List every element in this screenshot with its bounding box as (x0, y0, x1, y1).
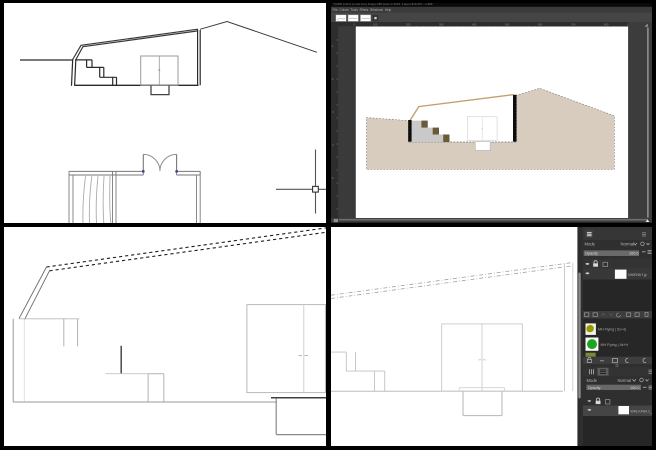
svg-text:*(GIMP xcfw-5 on test Grey Ima: *(GIMP xcfw-5 on test Grey Image) 288 (t… (333, 3, 433, 6)
svg-text:300: 300 (439, 23, 444, 27)
svg-text:700: 700 (571, 23, 576, 27)
svg-text:WHLKF84.1_p: WHLKF84.1_p (630, 409, 652, 413)
svg-text:Mode: Mode (585, 242, 596, 247)
svg-text:NIKEN6 f.jp: NIKEN6 f.jp (628, 273, 647, 277)
svg-text:MH Flying | 4k+H: MH Flying | 4k+H (601, 343, 629, 347)
svg-text:800: 800 (604, 23, 609, 27)
svg-text:Normal: Normal (621, 242, 635, 247)
svg-text:File Colors Tools Filters: File Colors Tools Filters Windows Help (333, 8, 392, 12)
svg-text:500: 500 (505, 23, 510, 27)
svg-text:Mode: Mode (587, 378, 598, 383)
svg-text:Opacity: Opacity (585, 252, 598, 256)
svg-text:Opacity: Opacity (588, 386, 601, 390)
svg-text:100.0: 100.0 (630, 386, 640, 390)
svg-text:600: 600 (538, 23, 543, 27)
svg-text:100.0: 100.0 (629, 252, 639, 256)
svg-text:100: 100 (373, 23, 378, 27)
svg-text:400: 400 (472, 23, 477, 27)
svg-text:Normal: Normal (618, 378, 632, 383)
svg-text:MH Flying | 5c+4j: MH Flying | 5c+4j (598, 328, 626, 332)
svg-text:200: 200 (406, 23, 411, 27)
